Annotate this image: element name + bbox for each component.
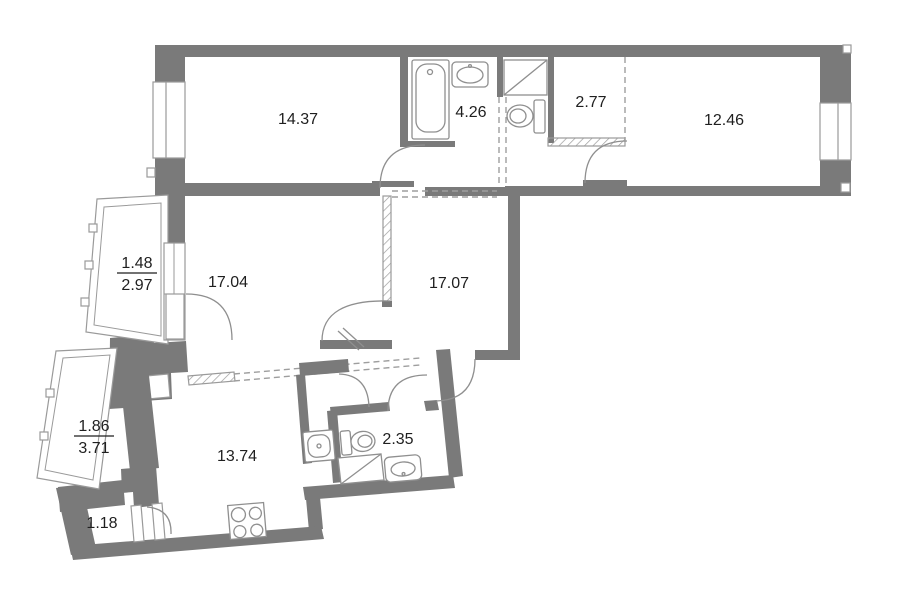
bathroom-bottom-wall bbox=[400, 141, 455, 147]
door-arc-niche bbox=[339, 374, 369, 407]
door-arc-bathroom-low bbox=[388, 375, 427, 411]
balcony-lower-mullion-1 bbox=[46, 389, 54, 397]
light-partitions bbox=[188, 138, 625, 385]
label-wc-top: 2.77 bbox=[575, 94, 606, 111]
bathtub-icon bbox=[412, 60, 449, 139]
shower-tray-icon-low bbox=[338, 454, 384, 484]
label-balcony-lower-reduced: 1.86 bbox=[78, 418, 109, 435]
wall-bathroom-wc-stub bbox=[497, 57, 503, 97]
label-room-top-right: 12.46 bbox=[704, 112, 744, 129]
closet-corner-block bbox=[121, 466, 159, 508]
top-wall bbox=[155, 45, 851, 57]
label-balcony-upper-full: 2.97 bbox=[121, 277, 152, 294]
toilet-icon-top bbox=[507, 100, 545, 133]
bathroom-low-top-wall bbox=[330, 402, 390, 416]
door-leaf-corridor bbox=[372, 181, 414, 187]
bottom-wall-right bbox=[505, 186, 851, 196]
partition-end-cap bbox=[382, 301, 392, 307]
label-bathroom-top: 4.26 bbox=[455, 104, 486, 121]
wall-room-bathroom bbox=[400, 57, 408, 147]
label-bathroom-low: 2.35 bbox=[382, 431, 413, 448]
floor-plan: 14.37 4.26 2.77 12.46 17.04 17.07 13.74 … bbox=[0, 0, 900, 610]
label-hall-mid: 17.07 bbox=[429, 275, 469, 292]
balcony-upper-mullion-1 bbox=[89, 224, 97, 232]
window-right-step bbox=[843, 45, 851, 53]
door-arc-room-17-04 bbox=[322, 301, 390, 341]
window-right-notch bbox=[841, 183, 850, 192]
label-balcony-upper-reduced: 1.48 bbox=[121, 255, 152, 272]
bathroom-low-top-stub bbox=[424, 400, 439, 411]
balcony-upper-door-leaf bbox=[166, 294, 184, 339]
window-right-opening bbox=[820, 103, 851, 160]
balcony-lower-mullion-2 bbox=[40, 432, 48, 440]
stove-icon bbox=[228, 503, 267, 540]
lower-right-wall bbox=[436, 349, 463, 478]
hall-bottom-stub-wall bbox=[475, 350, 520, 360]
hall-right-wall bbox=[508, 196, 520, 352]
window-left-opening bbox=[153, 82, 185, 158]
balcony-upper-mullion-3 bbox=[81, 298, 89, 306]
hall-wall-chunk bbox=[299, 359, 349, 376]
label-room-mid-left: 17.04 bbox=[208, 274, 248, 291]
label-room-top-left: 14.37 bbox=[278, 111, 318, 128]
room-top-left-bottom-wall bbox=[185, 183, 380, 196]
door-arc-balcony-upper bbox=[186, 294, 232, 340]
balcony-upper-mullion-2 bbox=[85, 261, 93, 269]
label-closet: 1.18 bbox=[86, 515, 117, 532]
sink-icon-low bbox=[384, 454, 422, 482]
window-left-notch bbox=[147, 168, 155, 177]
entrance-door-leaf bbox=[583, 180, 627, 187]
wall-wc-closet bbox=[548, 57, 554, 143]
toilet-icon-low bbox=[340, 428, 376, 455]
partition-17-04-17-07 bbox=[383, 196, 391, 303]
door-arc-entrance bbox=[585, 141, 627, 183]
shower-tray-icon-top bbox=[504, 60, 547, 95]
floor-plan-canvas: 14.37 4.26 2.77 12.46 17.04 17.07 13.74 … bbox=[0, 0, 900, 610]
washing-machine-icon bbox=[303, 430, 336, 463]
closet-door-jamb bbox=[131, 505, 144, 542]
label-kitchen: 13.74 bbox=[217, 448, 257, 465]
kitchen-hatched-stub bbox=[188, 372, 235, 385]
sink-icon-top bbox=[452, 62, 488, 87]
label-balcony-lower-full: 3.71 bbox=[78, 440, 109, 457]
